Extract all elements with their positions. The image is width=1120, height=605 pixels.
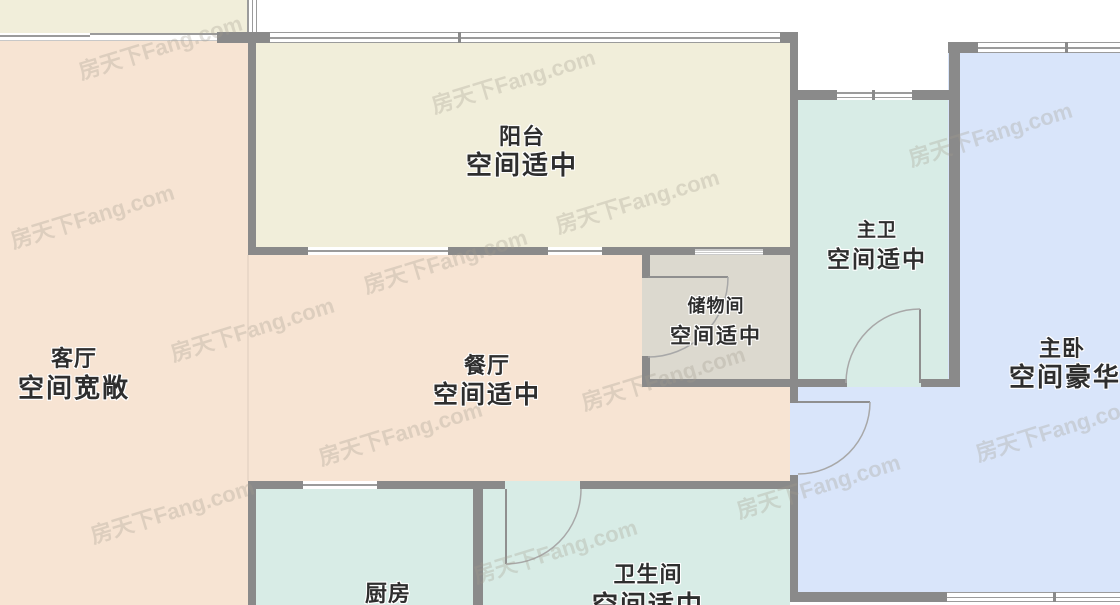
- kitchen-name-label: 厨房: [365, 583, 411, 605]
- room-top-left-partial: [0, 0, 247, 36]
- balcony-assessment-label: 空间适中: [466, 152, 578, 178]
- window-stub-vertical: [247, 0, 257, 32]
- bathroom-assessment-label: 空间适中: [592, 592, 704, 605]
- door-opening-bathroom: [505, 481, 580, 489]
- dining-name-label: 餐厅: [464, 355, 510, 377]
- door-opening-master-bath: [847, 379, 921, 387]
- window-master-bed-top: [978, 42, 1120, 53]
- window-master-bed-bottom: [947, 592, 1120, 602]
- wall: [248, 481, 256, 605]
- window-balcony-bottom-2: [548, 247, 602, 255]
- window-top-left: [0, 33, 217, 41]
- room-storage: [642, 249, 798, 387]
- door-opening-master-bed: [790, 403, 798, 475]
- wall: [790, 592, 947, 602]
- living-assessment-label: 空间宽敞: [18, 375, 130, 401]
- wall: [473, 483, 483, 605]
- wall: [217, 32, 272, 43]
- wall: [949, 42, 960, 387]
- bathroom-name-label: 卫生间: [613, 564, 682, 586]
- window-master-bath-top: [837, 90, 912, 100]
- room-master-bed-lower: [795, 387, 1120, 605]
- dining-assessment-label: 空间适中: [433, 383, 541, 408]
- balcony-name-label: 阳台: [499, 126, 545, 148]
- window-balcony-bottom-1: [308, 247, 448, 255]
- window-storage-top: [695, 249, 763, 255]
- living-name-label: 客厅: [51, 348, 97, 370]
- storage-name-label: 储物间: [688, 297, 745, 315]
- wall: [790, 32, 798, 605]
- living-dining-divider: [247, 255, 249, 481]
- master-bed-assessment-label: 空间豪华: [1009, 364, 1120, 390]
- window-kitchen-top: [303, 481, 377, 489]
- master-bath-assessment-label: 空间适中: [827, 248, 927, 271]
- window-balcony-top: [270, 32, 780, 43]
- wall: [248, 33, 256, 255]
- floorplan: 房天下Fang.com 房天下Fang.com 房天下Fang.com 房天下F…: [0, 0, 1120, 605]
- wall: [948, 42, 978, 53]
- master-bath-name-label: 主卫: [857, 221, 897, 240]
- door-opening-storage: [642, 278, 650, 356]
- master-bed-name-label: 主卧: [1039, 338, 1085, 360]
- storage-assessment-label: 空间适中: [670, 326, 762, 347]
